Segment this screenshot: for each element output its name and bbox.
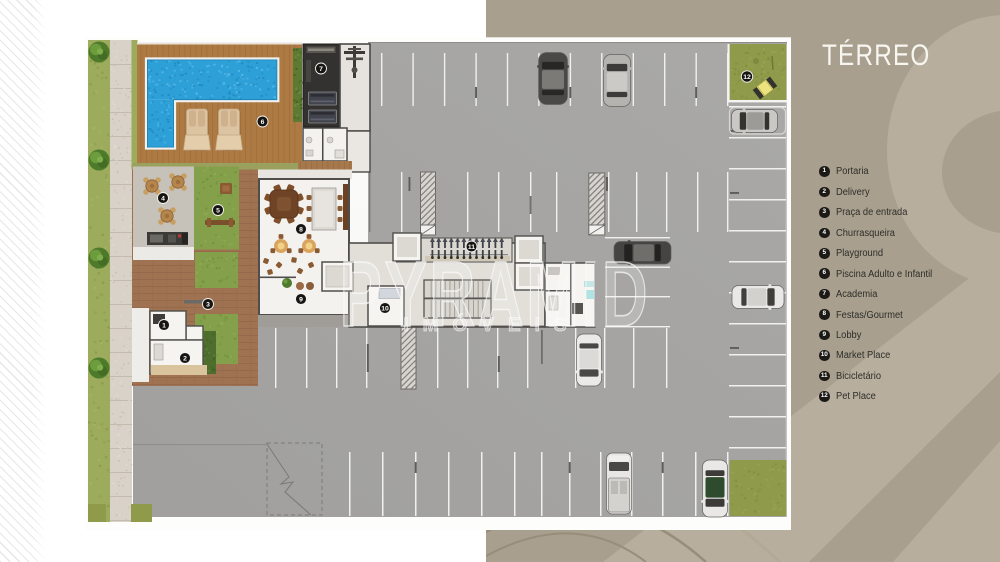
svg-text:IMÓVEIS: IMÓVEIS <box>403 314 580 336</box>
svg-text:8: 8 <box>299 226 303 233</box>
svg-text:2: 2 <box>183 355 187 362</box>
svg-text:9: 9 <box>299 296 303 303</box>
svg-text:6: 6 <box>261 119 265 126</box>
svg-text:4: 4 <box>161 195 165 202</box>
svg-text:3: 3 <box>206 301 210 308</box>
svg-text:7: 7 <box>319 66 323 73</box>
svg-text:1: 1 <box>162 322 166 329</box>
svg-text:12: 12 <box>743 74 751 81</box>
svg-text:5: 5 <box>216 207 220 214</box>
